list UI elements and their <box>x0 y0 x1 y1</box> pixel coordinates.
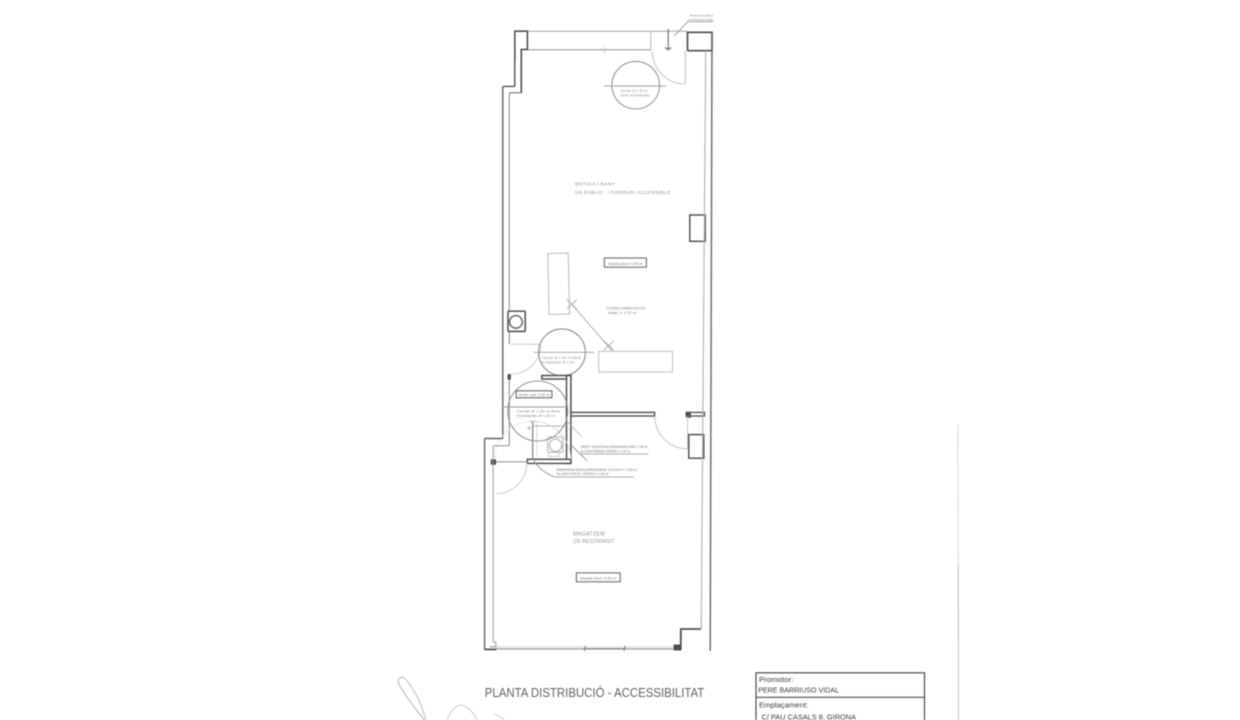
svg-text:BOTIGA I BANY: BOTIGA I BANY <box>575 182 616 188</box>
svg-text:lliure d'obstacles: lliure d'obstacles <box>621 94 651 98</box>
svg-text:ÚS PÚBLIC - ITINERARI ACCESSIB: ÚS PÚBLIC - ITINERARI ACCESSIBLE <box>575 189 671 196</box>
svg-text:POSSIBLE RAMPA D'ACCÉS: POSSIBLE RAMPA D'ACCÉS <box>607 305 646 310</box>
svg-text:Ampl. pas 1.00 m: Ampl. pas 1.00 m <box>519 393 550 397</box>
svg-text:ALÇADA MÍNIMA TERRA h= 0,20 m: ALÇADA MÍNIMA TERRA h= 0,20 m <box>581 450 631 454</box>
svg-text:d'obstacles Ø 1.50: d'obstacles Ø 1.50 <box>542 360 575 364</box>
svg-text:Promotor:: Promotor: <box>759 677 794 684</box>
svg-text:Alçada lliure 3.00 m: Alçada lliure 3.00 m <box>608 261 644 266</box>
svg-text:d'obstacles Ø 1.50 m: d'obstacles Ø 1.50 m <box>517 414 556 418</box>
svg-text:PARET DIVISÒRIA GRANDÀRIA MÍN.: PARET DIVISÒRIA GRANDÀRIA MÍN. 1,50 m <box>581 444 648 449</box>
svg-text:Ampl. ≥ 1.20 m: Ampl. ≥ 1.20 m <box>608 311 636 315</box>
svg-text:Alçada lliure 3.00 m: Alçada lliure 3.00 m <box>580 576 617 581</box>
svg-text:PLANTA DISTRIBUCIÓ - ACCESSIB: PLANTA DISTRIBUCIÓ - ACCESSIBILITAT <box>485 685 705 700</box>
svg-text:C/ PAU CASALS 8, GIRONA: C/ PAU CASALS 8, GIRONA <box>762 712 857 720</box>
svg-text:ALÇADA SÒCOL TERRA h= 0,20 m: ALÇADA SÒCOL TERRA h= 0,20 m <box>557 471 609 476</box>
svg-text:MAGATZEM: MAGATZEM <box>573 532 605 538</box>
svg-text:Emplaçament:: Emplaçament: <box>759 703 808 710</box>
svg-text:Cercle Ø 1.50 m lliure: Cercle Ø 1.50 m lliure <box>517 409 561 413</box>
svg-text:corredissa de vidre: corredissa de vidre <box>688 18 714 22</box>
svg-text:Cercle Ø 1.50 m: Cercle Ø 1.50 m <box>621 89 648 93</box>
svg-text:PERE BARRIUSO VIDAL: PERE BARRIUSO VIDAL <box>758 686 839 695</box>
svg-text:ÚS RESTRINGIT: ÚS RESTRINGIT <box>573 538 616 545</box>
svg-text:Cercle Ø 1.50 m lliure: Cercle Ø 1.50 m lliure <box>542 356 582 360</box>
